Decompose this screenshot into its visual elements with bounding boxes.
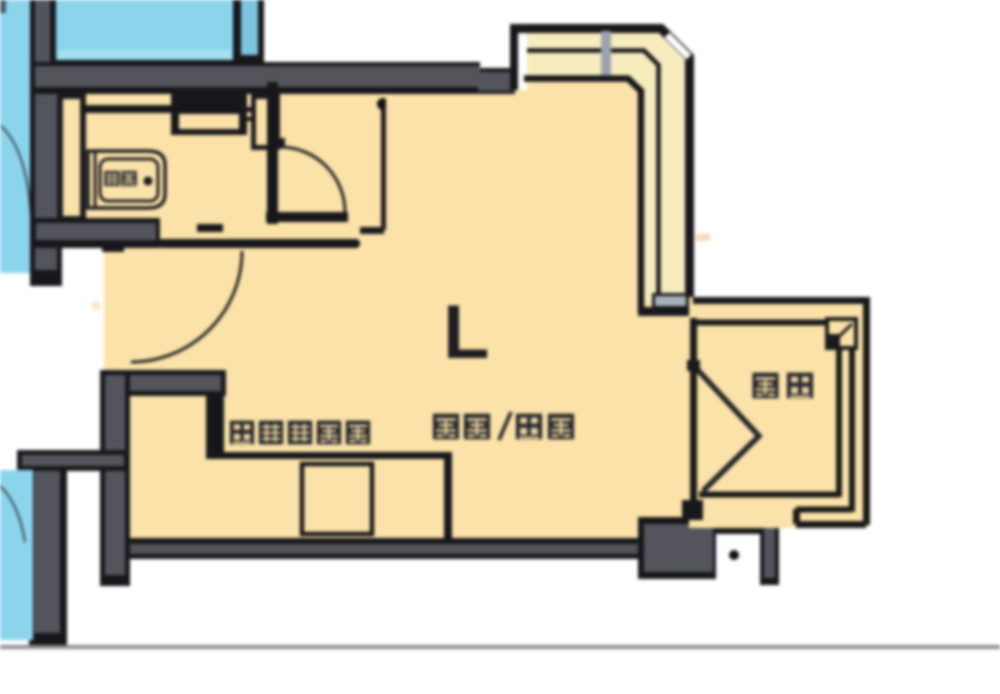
svg-text:L: L <box>443 290 489 375</box>
